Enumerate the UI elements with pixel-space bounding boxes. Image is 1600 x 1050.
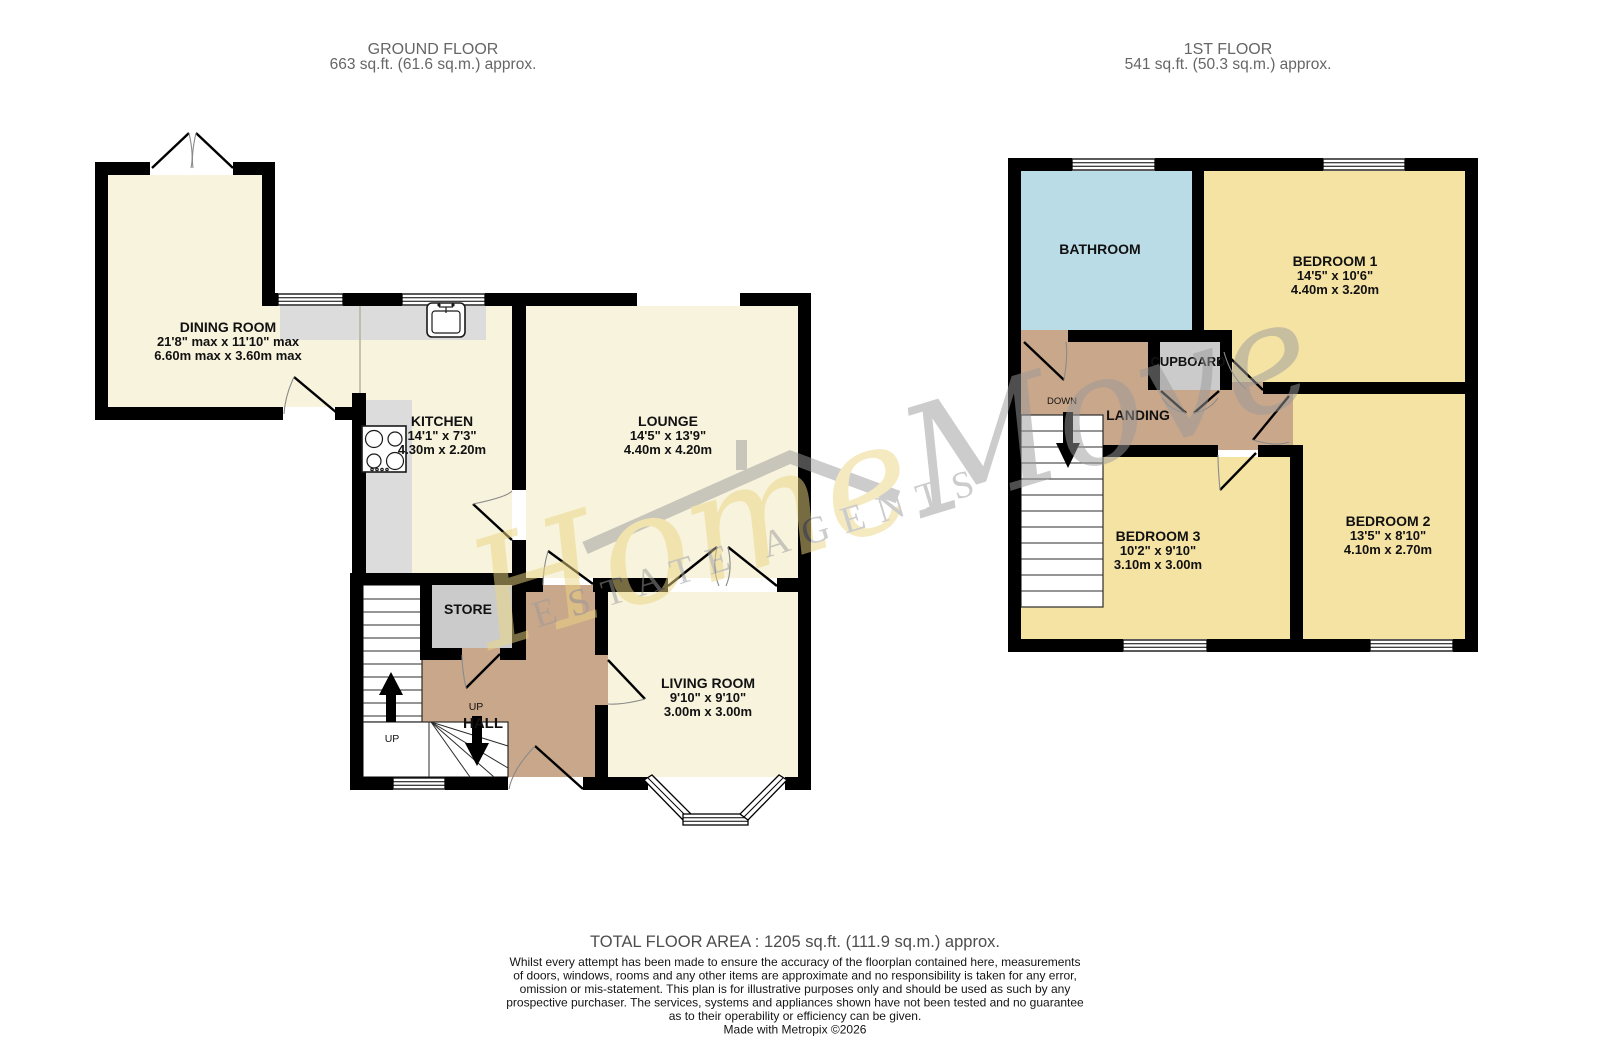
kitchen-label: KITCHEN	[411, 413, 473, 429]
disclaimer-line-3: omission or mis-statement. This plan is …	[520, 982, 1071, 996]
disclaimer-line-4: prospective purchaser. The services, sys…	[506, 996, 1084, 1010]
living-room-bay-window	[644, 775, 787, 825]
bedroom2-label: BEDROOM 2	[1346, 513, 1431, 529]
bedroom3-metric: 3.10m x 3.00m	[1114, 557, 1202, 572]
disclaimer-line-2: of doors, windows, rooms and any other i…	[513, 969, 1077, 983]
bedroom1-metric: 4.40m x 3.20m	[1291, 282, 1379, 297]
living-room-metric: 3.00m x 3.00m	[664, 704, 752, 719]
sink-icon	[427, 303, 465, 337]
ground-floor-subtitle: 663 sq.ft. (61.6 sq.m.) approx.	[330, 56, 537, 73]
disclaimer-line-1: Whilst every attempt has been made to en…	[510, 955, 1081, 969]
footer: TOTAL FLOOR AREA : 1205 sq.ft. (111.9 sq…	[506, 933, 1084, 1037]
kitchen-imperial: 14'1" x 7'3"	[407, 428, 476, 443]
disclaimer-line-5: as to their operability or efficiency ca…	[669, 1009, 922, 1023]
dining-room-metric: 6.60m max x 3.60m max	[154, 348, 302, 363]
bedroom1-imperial: 14'5" x 10'6"	[1297, 268, 1373, 283]
living-room-imperial: 9'10" x 9'10"	[670, 690, 746, 705]
metropix-credit: Made with Metropix ©2026	[724, 1023, 867, 1037]
dining-french-doors	[152, 133, 233, 168]
total-floor-area: TOTAL FLOOR AREA : 1205 sq.ft. (111.9 sq…	[590, 933, 1000, 951]
hall-up-label-2: UP	[385, 733, 400, 745]
floor-titles: GROUND FLOOR 663 sq.ft. (61.6 sq.m.) app…	[330, 41, 1332, 73]
bedroom1-window	[1323, 159, 1405, 170]
hall-label: HALL	[463, 715, 503, 732]
bathroom-label: BATHROOM	[1059, 241, 1140, 257]
lounge-label: LOUNGE	[638, 413, 698, 429]
bedroom2-imperial: 13'5" x 8'10"	[1350, 528, 1426, 543]
dining-room-label: DINING ROOM	[180, 319, 276, 335]
dining-room-imperial: 21'8" max x 11'10" max	[157, 334, 300, 349]
bathroom-window	[1072, 159, 1155, 170]
bedroom3-imperial: 10'2" x 9'10"	[1120, 543, 1196, 558]
bedroom3-window	[1123, 640, 1207, 651]
hall-window	[393, 778, 445, 789]
kitchen-window-left	[278, 294, 343, 305]
dining-room-floor	[108, 175, 262, 407]
floorplan-canvas: DINING ROOM 21'8" max x 11'10" max 6.60m…	[0, 0, 1600, 1050]
living-room-label: LIVING ROOM	[661, 675, 755, 691]
bedroom2-window	[1370, 640, 1453, 651]
bedroom1-label: BEDROOM 1	[1293, 253, 1378, 269]
kitchen-metric: 4.30m x 2.20m	[398, 442, 486, 457]
hall-up-label-1: UP	[469, 701, 484, 713]
bedroom3-label: BEDROOM 3	[1116, 528, 1201, 544]
lounge-imperial: 14'5" x 13'9"	[630, 428, 706, 443]
first-floor-subtitle: 541 sq.ft. (50.3 sq.m.) approx.	[1125, 56, 1332, 73]
bedroom2-metric: 4.10m x 2.70m	[1344, 542, 1432, 557]
